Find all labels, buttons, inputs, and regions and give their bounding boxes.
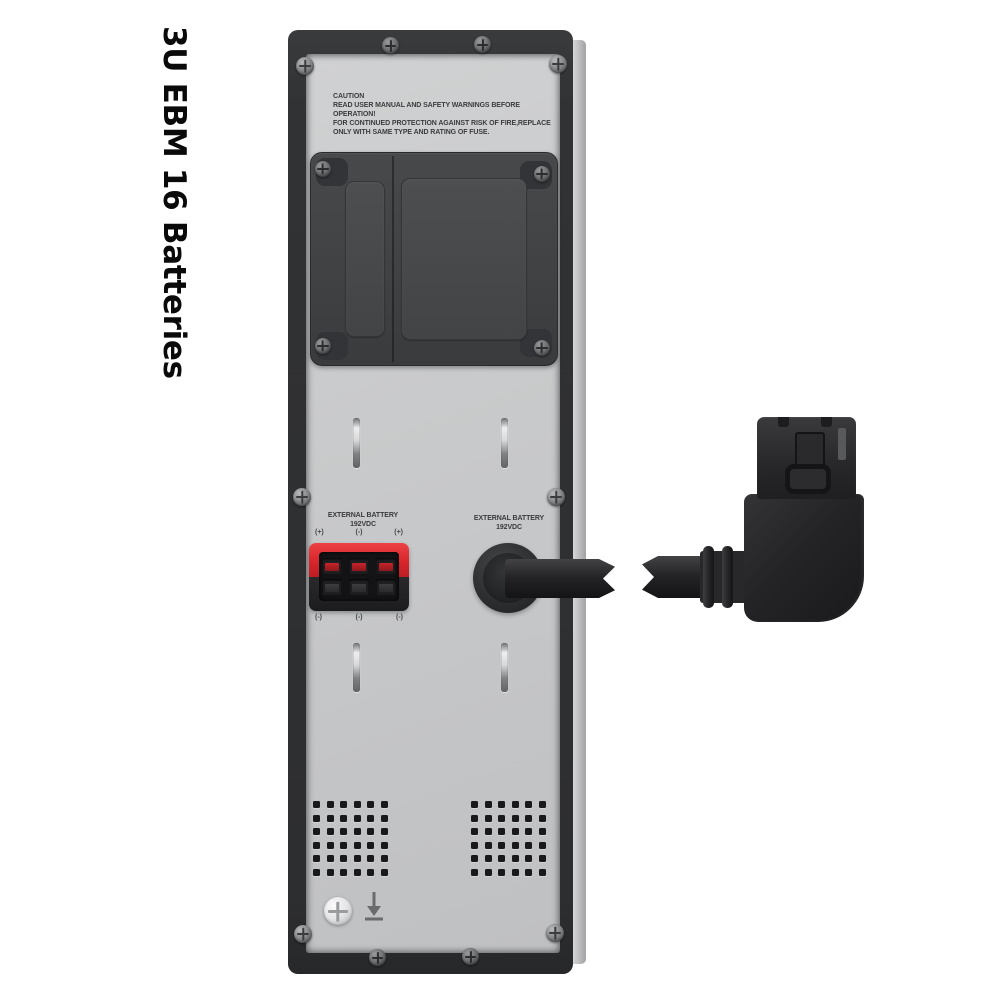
- vent-hole: [512, 855, 519, 862]
- vent-hole: [539, 869, 546, 876]
- screw-icon: [549, 55, 567, 73]
- handle-slot: [501, 418, 508, 468]
- plug-notch: [821, 417, 832, 427]
- vent-hole: [539, 855, 546, 862]
- polarity-mark: (-): [396, 614, 403, 621]
- vent-hole: [354, 801, 361, 808]
- vent-hole: [340, 869, 347, 876]
- vent-hole: [512, 869, 519, 876]
- terminal-slot: [349, 558, 369, 574]
- vent-hole: [340, 828, 347, 835]
- terminal-contact: [325, 563, 339, 571]
- plug-side-slot: [838, 428, 846, 460]
- terminal-slot: [322, 558, 342, 574]
- connector-rib: [722, 546, 733, 608]
- vent-hole: [354, 855, 361, 862]
- vent-hole: [327, 855, 334, 862]
- vent-hole: [471, 828, 478, 835]
- terminal-slot: [376, 579, 396, 595]
- ground-screw: [324, 897, 352, 925]
- vent-hole: [498, 869, 505, 876]
- left-terminal-label-line1: EXTERNAL BATTERY: [322, 511, 404, 520]
- polarity-mark: (+): [315, 529, 324, 536]
- vent-hole: [485, 828, 492, 835]
- left-terminal-label: EXTERNAL BATTERY 192VDC: [322, 511, 404, 529]
- access-plate: [310, 152, 558, 366]
- vent-grid-left: [313, 801, 388, 876]
- screw-icon: [534, 166, 550, 182]
- vent-hole: [367, 801, 374, 808]
- vent-hole: [354, 869, 361, 876]
- vent-hole: [381, 842, 388, 849]
- vent-hole: [485, 869, 492, 876]
- screw-icon: [293, 488, 311, 506]
- screw-icon: [294, 925, 312, 943]
- vent-hole: [354, 815, 361, 822]
- polarity-mark: (-): [315, 614, 322, 621]
- vent-hole: [512, 801, 519, 808]
- right-port-label: EXTERNAL BATTERY 192VDC: [467, 514, 551, 532]
- vent-grid-right: [471, 801, 546, 876]
- ground-symbol-icon: [360, 889, 388, 923]
- handle-slot: [353, 418, 360, 468]
- screw-icon: [296, 57, 314, 75]
- vent-hole: [313, 842, 320, 849]
- vent-hole: [539, 815, 546, 822]
- vent-hole: [313, 855, 320, 862]
- vent-hole: [340, 801, 347, 808]
- vent-hole: [471, 842, 478, 849]
- vent-hole: [367, 869, 374, 876]
- plug-notch: [778, 417, 789, 427]
- vent-hole: [354, 842, 361, 849]
- vent-hole: [512, 842, 519, 849]
- caution-text: CAUTION READ USER MANUAL AND SAFETY WARN…: [333, 92, 553, 137]
- vent-hole: [525, 815, 532, 822]
- product-image: 3U EBM 16 Batteries CAUTION READ USER MA…: [0, 0, 1000, 1000]
- vent-hole: [525, 842, 532, 849]
- vent-hole: [498, 828, 505, 835]
- screw-icon: [547, 488, 565, 506]
- caution-line: FOR CONTINUED PROTECTION AGAINST RISK OF…: [333, 119, 553, 128]
- connector-plug-head: [757, 417, 856, 499]
- battery-terminal-block: [309, 543, 409, 611]
- polarity-row-top: (+) (-) (+): [315, 529, 403, 536]
- screw-icon: [315, 161, 331, 177]
- screw-icon: [462, 948, 479, 965]
- vent-hole: [471, 801, 478, 808]
- vent-hole: [313, 828, 320, 835]
- handle-slot: [353, 643, 360, 692]
- right-port-label-line1: EXTERNAL BATTERY: [467, 514, 551, 523]
- polarity-mark: (-): [356, 529, 363, 536]
- terminal-contact: [325, 584, 339, 592]
- caution-line: ONLY WITH SAME TYPE AND RATING OF FUSE.: [333, 128, 553, 137]
- connector-rib: [703, 546, 714, 608]
- vent-hole: [367, 855, 374, 862]
- vent-hole: [471, 869, 478, 876]
- handle-slot: [501, 643, 508, 692]
- vent-hole: [381, 815, 388, 822]
- vent-hole: [340, 815, 347, 822]
- vent-hole: [354, 828, 361, 835]
- vent-hole: [539, 828, 546, 835]
- vent-hole: [367, 828, 374, 835]
- terminal-contact: [352, 584, 366, 592]
- vent-hole: [512, 828, 519, 835]
- vent-hole: [525, 801, 532, 808]
- terminal-housing: [319, 552, 399, 601]
- vent-hole: [485, 842, 492, 849]
- vent-hole: [525, 855, 532, 862]
- vent-hole: [498, 801, 505, 808]
- vent-hole: [340, 842, 347, 849]
- vent-hole: [471, 815, 478, 822]
- vent-hole: [539, 842, 546, 849]
- vent-hole: [327, 869, 334, 876]
- vent-hole: [381, 855, 388, 862]
- vent-hole: [313, 801, 320, 808]
- terminal-slot: [349, 579, 369, 595]
- screw-icon: [474, 36, 491, 53]
- vent-hole: [381, 801, 388, 808]
- terminal-contact: [379, 584, 393, 592]
- plate-seam: [392, 156, 394, 362]
- vent-hole: [367, 815, 374, 822]
- vent-hole: [512, 815, 519, 822]
- right-port-label-line2: 192VDC: [467, 523, 551, 532]
- vent-hole: [485, 801, 492, 808]
- vent-hole: [381, 828, 388, 835]
- left-terminal-label-line2: 192VDC: [322, 520, 404, 529]
- screw-icon: [369, 949, 386, 966]
- caution-heading: CAUTION: [333, 92, 553, 101]
- vent-hole: [327, 828, 334, 835]
- vent-hole: [485, 815, 492, 822]
- terminal-contact: [379, 563, 393, 571]
- vent-hole: [313, 815, 320, 822]
- chassis-side-face: [573, 40, 586, 964]
- vent-hole: [313, 869, 320, 876]
- vent-hole: [498, 842, 505, 849]
- terminal-slot: [322, 579, 342, 595]
- vent-hole: [525, 869, 532, 876]
- screw-icon: [382, 37, 399, 54]
- plate-recess-left: [345, 181, 385, 337]
- polarity-mark: (+): [394, 529, 403, 536]
- product-caption: 3U EBM 16 Batteries: [158, 26, 189, 379]
- screw-icon: [534, 340, 550, 356]
- vent-hole: [471, 855, 478, 862]
- vent-hole: [367, 842, 374, 849]
- vent-hole: [485, 855, 492, 862]
- vent-hole: [327, 801, 334, 808]
- terminal-contact: [352, 563, 366, 571]
- vent-hole: [327, 842, 334, 849]
- battery-cable: [505, 559, 615, 598]
- caution-line: READ USER MANUAL AND SAFETY WARNINGS BEF…: [333, 101, 553, 119]
- vent-hole: [525, 828, 532, 835]
- screw-icon: [546, 924, 564, 942]
- screw-icon: [315, 338, 331, 354]
- polarity-row-bottom: (-) (-) (-): [315, 614, 403, 621]
- vent-hole: [539, 801, 546, 808]
- vent-hole: [498, 815, 505, 822]
- plate-recess-right: [401, 178, 527, 340]
- vent-hole: [498, 855, 505, 862]
- vent-hole: [381, 869, 388, 876]
- polarity-mark: (-): [356, 614, 363, 621]
- connector-elbow-body: [744, 494, 864, 622]
- vent-hole: [340, 855, 347, 862]
- vent-hole: [327, 815, 334, 822]
- terminal-slot: [376, 558, 396, 574]
- plug-latch-ring: [785, 464, 831, 494]
